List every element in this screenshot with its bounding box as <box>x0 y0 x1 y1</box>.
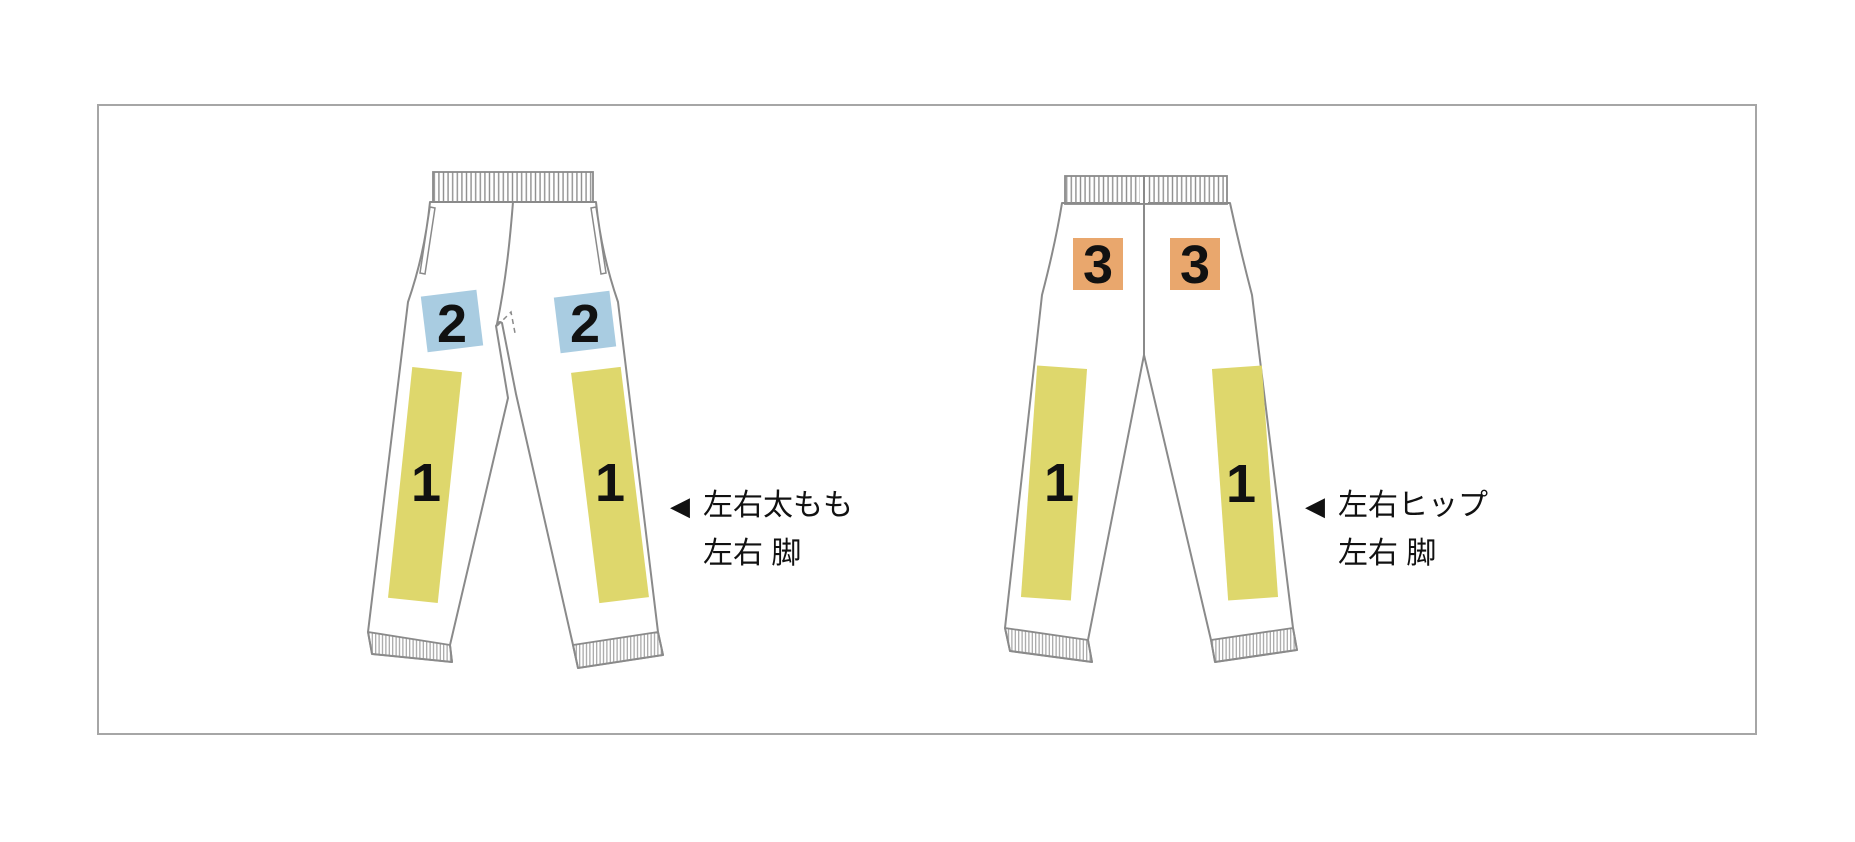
left-arrow-icon: ◀ <box>1305 482 1325 578</box>
pants-front-illustration: 2 2 1 1 <box>340 130 690 690</box>
zone-number-front-left-thigh: 2 <box>437 294 467 354</box>
back-annotation-line1: 左右ヒップ <box>1338 482 1488 530</box>
zone-number-front-right-leg: 1 <box>595 453 625 513</box>
back-annotation: ◀ 左右ヒップ 左右 脚 <box>1305 482 1488 578</box>
back-annotation-line2: 左右 脚 <box>1338 530 1488 578</box>
front-annotation-line1: 左右太もも <box>703 482 853 530</box>
zone-number-front-right-thigh: 2 <box>570 294 600 354</box>
left-arrow-icon: ◀ <box>670 482 690 578</box>
front-waistband <box>433 172 593 202</box>
front-annotation: ◀ 左右太もも 左右 脚 <box>670 482 853 578</box>
front-annotation-text: 左右太もも 左右 脚 <box>703 482 853 578</box>
zone-number-back-left-leg: 1 <box>1044 453 1074 513</box>
back-annotation-text: 左右ヒップ 左右 脚 <box>1338 482 1488 578</box>
zone-number-front-left-leg: 1 <box>411 453 441 513</box>
diagram-canvas: 2 2 1 1 <box>0 0 1855 842</box>
front-annotation-line2: 左右 脚 <box>703 530 853 578</box>
zone-number-back-right-hip: 3 <box>1180 235 1210 295</box>
zone-number-back-right-leg: 1 <box>1226 454 1256 514</box>
zone-number-back-left-hip: 3 <box>1083 235 1113 295</box>
pants-back-illustration: 3 3 1 1 <box>1000 130 1330 690</box>
